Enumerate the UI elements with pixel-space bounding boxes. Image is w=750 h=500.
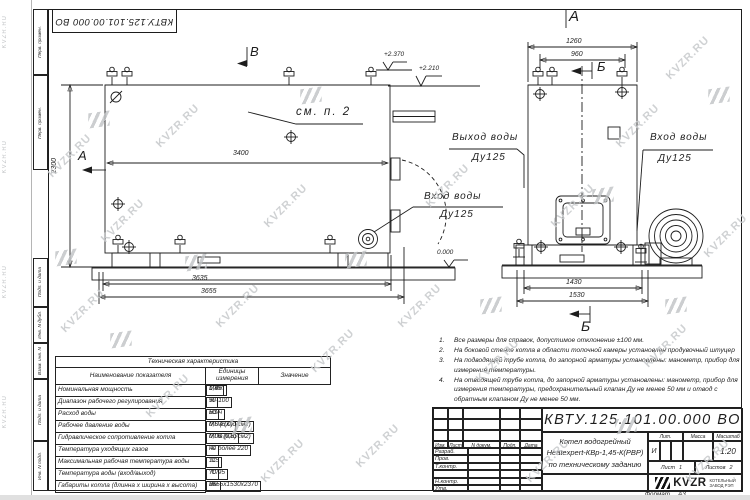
water-outlet-dn: Ду125 xyxy=(472,152,506,163)
note-item: 2.На боковой стенке котла в области топо… xyxy=(437,346,740,356)
view-a-label: А xyxy=(569,8,579,25)
tb-row-prov: Пров. xyxy=(433,455,468,462)
margin-cell-perv-primen: Перв. примен. xyxy=(33,9,48,75)
tb-lit-header: Лит. xyxy=(648,432,683,441)
view-mark-a-left: А xyxy=(78,148,87,163)
margin-cell-inv-dubl: Инв. N дубл. xyxy=(33,307,48,343)
margin-label: Подп. и дата xyxy=(38,267,43,297)
sheets-value: 2 xyxy=(729,465,732,471)
tech-table-header-units: Единицы измерения xyxy=(206,368,259,385)
water-inlet-right-dn: Ду125 xyxy=(658,153,692,164)
dim-960-label: 960 xyxy=(571,51,583,58)
drawing-page: Перв. примен. Перв. примен. Подп. и дата… xyxy=(0,0,750,500)
tb-row-utv: Утв. xyxy=(433,485,468,492)
drawing-notes: 1.Все размеры для справок, допустимое от… xyxy=(437,336,740,405)
elevation-zero-label: 0.000 xyxy=(437,249,453,256)
tb-row-tkontr: Т.контр. xyxy=(433,463,468,470)
top-stamp-doc-number: КВТУ.125.101.00.000 ВО xyxy=(55,16,173,27)
see-note-label: см. п. 2 xyxy=(296,106,351,118)
page-trim-line xyxy=(31,0,32,500)
tb-col-izm: Изм. xyxy=(433,441,448,448)
sheet-value: 1 xyxy=(679,465,682,471)
description-line: Heatexpert-КВр-1,45-К(РВР) xyxy=(543,447,647,458)
technical-characteristics-table: Техническая характеристика Наименование … xyxy=(55,356,331,493)
tb-sheets-cell: Листов 2 xyxy=(695,461,743,474)
title-block: Изм. Лист N докум. Подп. Дата Разраб. Пр… xyxy=(432,407,742,491)
water-outlet-label: Выход воды xyxy=(452,132,518,143)
tech-table-header-name: Наименование показателя xyxy=(56,368,206,385)
tb-col-data: Дата xyxy=(520,441,542,448)
dim-3635-label: 3635 xyxy=(192,275,208,282)
dim-1430-label: 1430 xyxy=(566,279,582,286)
note-item: 1.Все размеры для справок, допустимое от… xyxy=(437,336,740,346)
tb-scale-header: Масштаб xyxy=(713,432,743,441)
table-row: Температура воды (вход/выход)°С70/95 xyxy=(56,469,331,481)
title-block-description: Котел водогрейный Heatexpert-КВр-1,45-К(… xyxy=(542,432,648,474)
margin-cell-perv-primen-2: Перв. примен. xyxy=(33,75,48,170)
title-block-doc-number: КВТУ.125.101.00.000 ВО xyxy=(542,408,743,432)
description-line: по техническому заданию xyxy=(543,459,647,470)
table-row: Рабочее давление водыМПа (кгс/см2)0,6 (6… xyxy=(56,421,331,433)
tb-col-podp: Подп. xyxy=(500,441,520,448)
water-inlet-left-dn: Ду125 xyxy=(440,209,474,220)
margin-label: Перв. примен. xyxy=(38,26,43,58)
company-name: KVZR xyxy=(673,477,706,489)
margin-label: Перв. примен. xyxy=(38,107,43,139)
section-b-bottom-label: Б xyxy=(581,318,590,334)
margin-cell-podp-data: Подп. и дата xyxy=(33,258,48,307)
margin-label: Взам. инв. N xyxy=(38,347,43,375)
table-row: Диапазон рабочего регулирования%50-100 xyxy=(56,397,331,409)
table-row: Номинальная мощностьМВт1,45 xyxy=(56,385,331,397)
section-b-top-label: Б xyxy=(597,59,605,74)
tb-mass-header: Масса xyxy=(683,432,713,441)
tb-col-ndokum: N докум. xyxy=(463,441,500,448)
tb-scale-value: 1:20 xyxy=(713,441,743,461)
table-row: Максимальная рабочая температура воды°С1… xyxy=(56,457,331,469)
table-row: Гидравлическое сопротивление котлаМПа (к… xyxy=(56,433,331,445)
tech-table-title: Техническая характеристика xyxy=(56,357,331,368)
kvzr-logo-icon xyxy=(655,477,670,489)
sheets-label: Листов xyxy=(705,465,725,471)
table-row: Расход водым3/ч50 xyxy=(56,409,331,421)
margin-label: Инв. N подл. xyxy=(38,452,43,480)
page-bottom-edge xyxy=(0,495,750,500)
table-row: Температура уходящих газов°Сне более 220 xyxy=(56,445,331,457)
company-cell: KVZR КОТЕЛЬНЫЙ ЗАВОД РЭП xyxy=(648,474,743,492)
tb-row-razrab: Разраб. xyxy=(433,448,468,455)
margin-cell-podp-data-2: Подп. и дата xyxy=(33,379,48,441)
water-inlet-left-label: Вход воды xyxy=(424,191,482,202)
top-rotated-stamp: КВТУ.125.101.00.000 ВО xyxy=(52,9,177,33)
dim-3655-label: 3655 xyxy=(201,288,217,295)
note-item: 4.На отводящей трубе котла, до запорной … xyxy=(437,376,740,406)
dim-3400-label: 3400 xyxy=(233,150,249,157)
company-subtitle: КОТЕЛЬНЫЙ ЗАВОД РЭП xyxy=(710,478,736,489)
table-row: Габариты котла (длинна х ширина х высота… xyxy=(56,481,331,493)
elevation-2370-label: +2.370 xyxy=(384,51,404,58)
water-inlet-right-label: Вход воды xyxy=(650,132,708,143)
sheet-label: Лист xyxy=(661,465,675,471)
view-mark-v-top: В xyxy=(250,44,259,59)
margin-label: Подп. и дата xyxy=(38,395,43,425)
margin-cell-vzam-inv: Взам. инв. N xyxy=(33,343,48,379)
tb-row-nkontr: Н.контр. xyxy=(433,478,468,485)
description-line: Котел водогрейный xyxy=(543,436,647,447)
margin-label: Инв. N дубл. xyxy=(38,311,43,339)
tb-col-list: Лист xyxy=(448,441,463,448)
margin-cell-inv-podl: Инв. N подл. xyxy=(33,441,48,491)
dim-1530-label: 1530 xyxy=(569,292,585,299)
tb-sheet-cell: Лист 1 xyxy=(648,461,695,474)
tech-table-header-value: Значение xyxy=(259,368,331,385)
dim-1260-label: 1260 xyxy=(566,38,582,45)
elevation-2210-label: +2.210 xyxy=(419,65,439,72)
note-item: 3.На подводящей трубе котла, до запорной… xyxy=(437,356,740,376)
tb-lit-value: И xyxy=(648,441,660,461)
dim-2300-label: 2300 xyxy=(51,158,58,174)
